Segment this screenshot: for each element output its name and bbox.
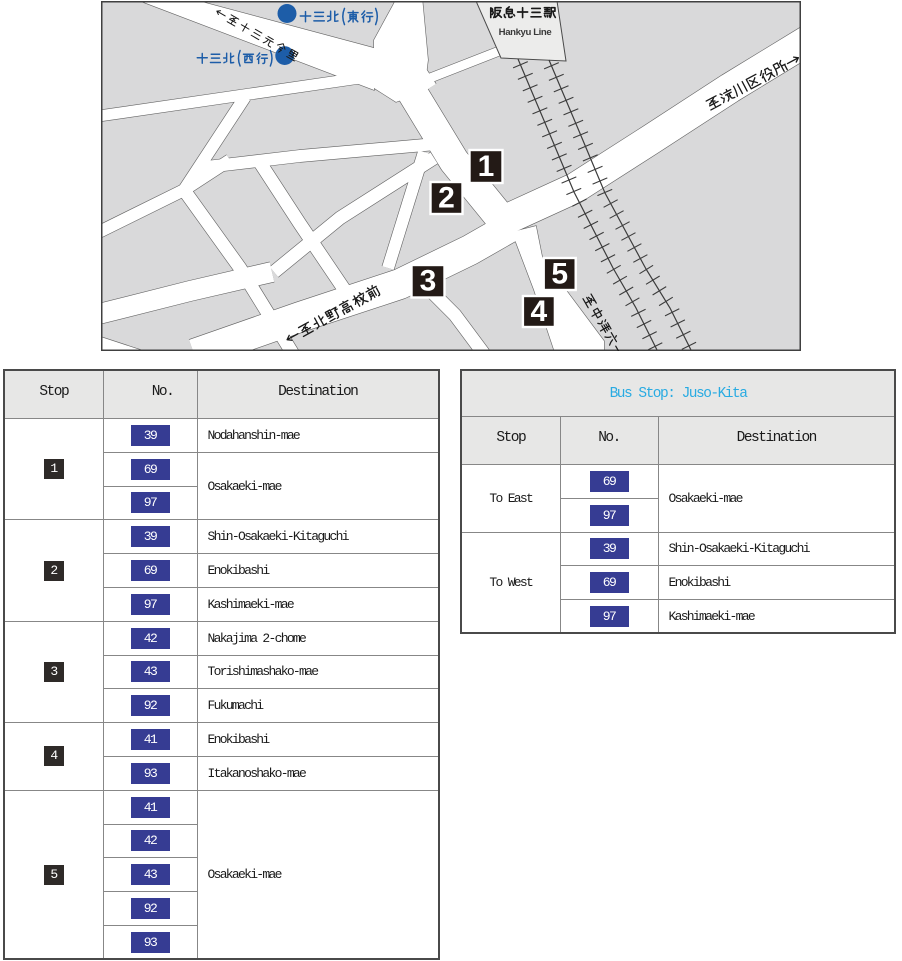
svg-text:3: 3 (420, 265, 437, 298)
svg-text:4: 4 (531, 295, 548, 328)
svg-text:5: 5 (551, 258, 568, 291)
svg-text:Hankyu Line: Hankyu Line (499, 27, 552, 38)
svg-text:1: 1 (478, 150, 495, 183)
svg-text:2: 2 (438, 182, 455, 215)
